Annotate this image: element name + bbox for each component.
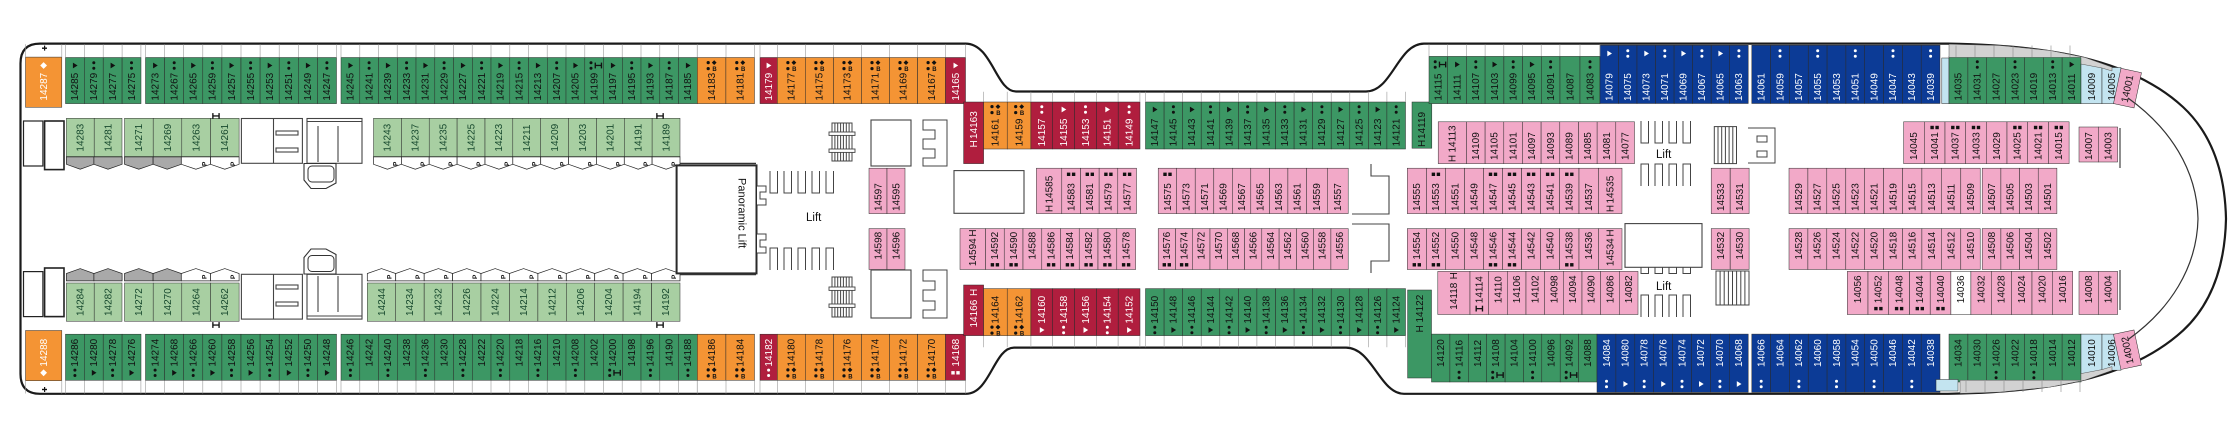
svg-text:14039: 14039 [1926, 73, 1937, 101]
svg-text:14095: 14095 [1527, 72, 1538, 100]
svg-text:H: H [1606, 229, 1617, 236]
svg-text:14262: 14262 [220, 288, 231, 316]
svg-text:14183: 14183 [707, 72, 718, 100]
svg-text:14571: 14571 [1200, 183, 1211, 211]
svg-text:14577: 14577 [1122, 183, 1133, 211]
svg-text:14188: 14188 [683, 338, 694, 366]
svg-text:14007: 14007 [2084, 132, 2095, 160]
svg-text:14161: 14161 [991, 118, 1002, 146]
svg-text:14555: 14555 [1412, 183, 1423, 211]
svg-text:14097: 14097 [1527, 132, 1538, 160]
svg-text:14531: 14531 [1735, 183, 1746, 211]
svg-text:P: P [476, 161, 483, 166]
svg-text:H: H [1448, 155, 1459, 162]
svg-text:14027: 14027 [1991, 72, 2002, 100]
svg-text:14004: 14004 [2103, 275, 2114, 303]
svg-text:B: B [820, 67, 825, 73]
svg-text:P: P [444, 274, 451, 279]
svg-text:14167: 14167 [927, 72, 938, 100]
svg-text:14111: 14111 [1452, 74, 1463, 101]
svg-text:14253: 14253 [265, 72, 276, 100]
svg-text:14216: 14216 [533, 338, 544, 366]
svg-text:14162: 14162 [1014, 295, 1025, 323]
svg-text:14516: 14516 [1908, 231, 1919, 259]
svg-text:14026: 14026 [1991, 339, 2002, 367]
svg-text:14257: 14257 [227, 72, 238, 100]
svg-text:14209: 14209 [550, 123, 561, 151]
svg-text:B: B [848, 67, 853, 73]
svg-text:14054: 14054 [1851, 339, 1862, 367]
svg-text:14128: 14128 [1354, 295, 1365, 323]
svg-text:14090: 14090 [1587, 275, 1598, 303]
svg-text:14588: 14588 [1028, 231, 1039, 259]
svg-text:14122: 14122 [1415, 294, 1426, 322]
svg-text:14036: 14036 [1956, 275, 1967, 303]
svg-text:14087: 14087 [1565, 72, 1576, 100]
svg-text:14170: 14170 [927, 338, 938, 366]
svg-text:14544: 14544 [1507, 231, 1518, 259]
svg-text:14552: 14552 [1431, 231, 1442, 259]
svg-text:14238: 14238 [402, 338, 413, 366]
svg-text:14234: 14234 [405, 288, 416, 316]
svg-text:14558: 14558 [1318, 231, 1329, 259]
svg-text:14032: 14032 [1976, 275, 1987, 303]
svg-text:14597: 14597 [873, 183, 884, 211]
svg-text:14537: 14537 [1584, 183, 1595, 211]
svg-text:14149: 14149 [1124, 118, 1135, 146]
svg-text:14223: 14223 [494, 123, 505, 151]
svg-text:14034: 14034 [1954, 339, 1965, 367]
svg-text:14581: 14581 [1085, 183, 1096, 211]
svg-text:14563: 14563 [1274, 183, 1285, 211]
svg-text:14227: 14227 [458, 72, 469, 100]
svg-text:14251: 14251 [284, 72, 295, 100]
svg-text:14145: 14145 [1169, 118, 1180, 146]
svg-text:14153: 14153 [1081, 118, 1092, 146]
svg-text:14045: 14045 [1909, 132, 1920, 160]
svg-text:14112: 14112 [1473, 339, 1484, 367]
svg-text:14276: 14276 [127, 338, 138, 366]
svg-text:14164: 14164 [991, 295, 1002, 323]
svg-text:14083: 14083 [1585, 72, 1596, 100]
svg-text:14505: 14505 [2006, 183, 2017, 211]
svg-text:14237: 14237 [411, 123, 422, 151]
svg-text:14556: 14556 [1335, 231, 1346, 259]
svg-text:14592: 14592 [990, 231, 1001, 259]
svg-text:14248: 14248 [322, 338, 333, 366]
svg-text:14202: 14202 [590, 338, 601, 366]
svg-text:14088: 14088 [1583, 339, 1594, 367]
svg-text:14522: 14522 [1851, 231, 1862, 259]
svg-text:14081: 14081 [1602, 132, 1613, 160]
svg-text:14015: 14015 [2054, 132, 2065, 160]
svg-text:14056: 14056 [1853, 275, 1864, 303]
svg-text:B: B [932, 67, 937, 73]
svg-text:P: P [586, 274, 593, 279]
svg-text:14530: 14530 [1735, 231, 1746, 259]
svg-text:14547: 14547 [1488, 183, 1499, 211]
svg-text:14549: 14549 [1469, 183, 1480, 211]
svg-text:14123: 14123 [1373, 118, 1384, 146]
svg-text:P: P [560, 161, 567, 166]
svg-text:14174: 14174 [871, 338, 882, 366]
svg-text:14193: 14193 [646, 72, 657, 100]
svg-text:14575: 14575 [1163, 183, 1174, 211]
svg-text:14250: 14250 [303, 338, 314, 366]
svg-text:14063: 14063 [1734, 73, 1745, 101]
svg-text:14194: 14194 [633, 288, 644, 316]
svg-text:14249: 14249 [303, 72, 314, 100]
svg-text:14585: 14585 [1044, 175, 1055, 203]
svg-text:14534: 14534 [1606, 238, 1617, 266]
svg-text:14595: 14595 [891, 183, 902, 211]
svg-text:14510: 14510 [1966, 231, 1977, 259]
svg-text:14042: 14042 [1907, 339, 1918, 367]
svg-text:B: B [1020, 111, 1025, 117]
svg-text:H: H [1044, 205, 1055, 212]
svg-text:14086: 14086 [1605, 275, 1616, 303]
svg-text:14134: 14134 [1299, 295, 1310, 323]
svg-text:14246: 14246 [346, 338, 357, 366]
svg-text:14526: 14526 [1813, 231, 1824, 259]
svg-text:P: P [202, 161, 209, 166]
svg-text:14099: 14099 [1509, 72, 1520, 100]
svg-text:P: P [420, 161, 427, 166]
svg-text:14215: 14215 [514, 72, 525, 100]
svg-text:14169: 14169 [899, 72, 910, 100]
svg-text:14031: 14031 [1973, 72, 1984, 100]
svg-text:B: B [876, 374, 881, 380]
svg-text:14035: 14035 [1954, 72, 1965, 100]
svg-text:14062: 14062 [1794, 339, 1805, 367]
svg-text:14055: 14055 [1813, 73, 1824, 101]
svg-text:14279: 14279 [89, 72, 100, 100]
svg-text:14509: 14509 [1966, 183, 1977, 211]
svg-text:14048: 14048 [1894, 275, 1905, 303]
svg-text:14139: 14139 [1224, 118, 1235, 146]
svg-text:14020: 14020 [2038, 275, 2049, 303]
svg-text:14524: 14524 [1832, 231, 1843, 259]
svg-text:P: P [500, 274, 507, 279]
svg-text:14224: 14224 [491, 288, 502, 316]
svg-text:P: P [557, 274, 564, 279]
svg-text:14064: 14064 [1775, 339, 1786, 367]
svg-text:14259: 14259 [208, 72, 219, 100]
svg-text:14046: 14046 [1888, 339, 1899, 367]
svg-text:B: B [848, 374, 853, 380]
svg-text:14271: 14271 [134, 123, 145, 151]
svg-text:14210: 14210 [552, 338, 563, 366]
svg-text:14057: 14057 [1794, 73, 1805, 101]
svg-text:14263: 14263 [192, 123, 203, 151]
svg-text:14570: 14570 [1214, 231, 1225, 259]
svg-text:B: B [932, 374, 937, 380]
svg-text:14094: 14094 [1568, 275, 1579, 303]
svg-text:14136: 14136 [1280, 295, 1291, 323]
svg-text:P: P [230, 274, 237, 279]
svg-text:P: P [230, 161, 237, 166]
svg-text:14281: 14281 [104, 123, 115, 151]
svg-text:14110: 14110 [1493, 276, 1504, 304]
svg-text:P: P [387, 274, 394, 279]
svg-text:14171: 14171 [871, 72, 882, 100]
svg-text:14501: 14501 [2043, 183, 2054, 211]
svg-text:14540: 14540 [1545, 231, 1556, 259]
svg-text:14008: 14008 [2084, 275, 2095, 303]
svg-text:14535: 14535 [1606, 175, 1617, 203]
svg-text:14187: 14187 [665, 72, 676, 100]
svg-text:14548: 14548 [1469, 231, 1480, 259]
svg-text:14559: 14559 [1312, 183, 1323, 211]
svg-text:14533: 14533 [1716, 183, 1727, 211]
svg-text:14050: 14050 [1869, 339, 1880, 367]
svg-text:14260: 14260 [208, 338, 219, 366]
svg-text:14256: 14256 [246, 338, 257, 366]
svg-text:14240: 14240 [383, 338, 394, 366]
svg-text:14158: 14158 [1059, 295, 1070, 323]
svg-text:14003: 14003 [2103, 132, 2114, 160]
svg-text:14580: 14580 [1103, 231, 1114, 259]
svg-text:14106: 14106 [1512, 275, 1523, 303]
svg-text:14538: 14538 [1565, 231, 1576, 259]
svg-text:14199: 14199 [590, 72, 601, 100]
svg-text:14582: 14582 [1084, 231, 1095, 259]
svg-text:14204: 14204 [604, 288, 615, 316]
svg-text:14218: 14218 [514, 338, 525, 366]
svg-text:14235: 14235 [439, 123, 450, 151]
svg-text:14069: 14069 [1679, 73, 1690, 101]
svg-text:14562: 14562 [1283, 231, 1294, 259]
svg-text:14147: 14147 [1150, 118, 1161, 146]
svg-text:14239: 14239 [383, 72, 394, 100]
svg-text:14226: 14226 [462, 288, 473, 316]
svg-text:14182: 14182 [764, 338, 775, 366]
svg-text:14077: 14077 [1621, 132, 1632, 160]
svg-text:14029: 14029 [1992, 132, 2003, 160]
svg-text:H: H [969, 140, 980, 147]
svg-text:14146: 14146 [1187, 295, 1198, 323]
svg-text:14564: 14564 [1266, 231, 1277, 259]
svg-text:P: P [504, 161, 511, 166]
svg-text:14119: 14119 [1417, 111, 1428, 139]
svg-text:14586: 14586 [1046, 231, 1057, 259]
svg-text:14085: 14085 [1583, 132, 1594, 160]
svg-text:14072: 14072 [1696, 339, 1707, 367]
svg-text:P: P [202, 274, 209, 279]
svg-text:14067: 14067 [1697, 73, 1708, 101]
svg-text:14084: 14084 [1602, 339, 1613, 367]
svg-text:14030: 14030 [1973, 339, 1984, 367]
svg-text:H: H [969, 289, 980, 296]
svg-text:14220: 14220 [496, 338, 507, 366]
svg-text:14247: 14247 [322, 72, 333, 100]
svg-text:14284: 14284 [76, 288, 87, 316]
svg-text:14208: 14208 [571, 338, 582, 366]
svg-text:14107: 14107 [1471, 72, 1482, 100]
svg-text:14009: 14009 [2087, 72, 2098, 100]
svg-text:14525: 14525 [1832, 183, 1843, 211]
svg-text:14116: 14116 [1454, 339, 1465, 367]
svg-text:14285: 14285 [70, 72, 81, 100]
svg-text:14513: 14513 [1927, 183, 1938, 211]
svg-text:14287: 14287 [39, 72, 50, 100]
svg-text:14258: 14258 [227, 338, 238, 366]
svg-text:14165: 14165 [951, 72, 962, 100]
svg-text:14266: 14266 [189, 338, 200, 366]
svg-text:14565: 14565 [1255, 183, 1266, 211]
svg-text:14527: 14527 [1813, 183, 1824, 211]
svg-text:14105: 14105 [1490, 132, 1501, 160]
svg-text:14037: 14037 [1951, 132, 1962, 160]
svg-text:14242: 14242 [364, 338, 375, 366]
svg-text:14159: 14159 [1014, 118, 1025, 146]
svg-text:14543: 14543 [1526, 183, 1537, 211]
svg-text:14011: 14011 [2067, 73, 2078, 101]
svg-text:B: B [904, 374, 909, 380]
svg-text:14074: 14074 [1677, 339, 1688, 367]
svg-text:H: H [1449, 272, 1460, 279]
svg-text:14092: 14092 [1565, 339, 1576, 367]
svg-text:14078: 14078 [1640, 339, 1651, 367]
svg-text:14546: 14546 [1488, 231, 1499, 259]
svg-text:14024: 14024 [2017, 275, 2028, 303]
svg-text:14282: 14282 [104, 288, 115, 316]
svg-text:14507: 14507 [1987, 183, 1998, 211]
svg-text:14213: 14213 [533, 72, 544, 100]
svg-text:14168: 14168 [951, 338, 962, 366]
svg-text:14561: 14561 [1292, 183, 1303, 211]
svg-text:14068: 14068 [1734, 339, 1745, 367]
svg-text:14228: 14228 [458, 338, 469, 366]
svg-text:14502: 14502 [2043, 231, 2054, 259]
svg-text:14252: 14252 [284, 338, 295, 366]
svg-text:14154: 14154 [1103, 295, 1114, 323]
svg-text:P: P [615, 161, 622, 166]
svg-text:14051: 14051 [1851, 73, 1862, 101]
svg-text:14190: 14190 [665, 338, 676, 366]
svg-text:14176: 14176 [843, 338, 854, 366]
svg-text:14076: 14076 [1659, 339, 1670, 367]
svg-text:14503: 14503 [2024, 183, 2035, 211]
svg-text:14047: 14047 [1888, 73, 1899, 101]
svg-text:14185: 14185 [683, 72, 694, 100]
svg-text:14179: 14179 [764, 72, 775, 100]
svg-text:14021: 14021 [2033, 132, 2044, 160]
svg-text:14104: 14104 [1510, 339, 1521, 367]
svg-text:14155: 14155 [1059, 118, 1070, 146]
svg-text:14066: 14066 [1757, 339, 1768, 367]
svg-text:14012: 14012 [2067, 339, 2078, 367]
svg-text:B: B [712, 67, 717, 73]
svg-text:14178: 14178 [815, 338, 826, 366]
svg-text:14118: 14118 [1449, 282, 1460, 310]
svg-text:14532: 14532 [1716, 231, 1727, 259]
svg-text:14049: 14049 [1869, 73, 1880, 101]
svg-text:14268: 14268 [170, 338, 181, 366]
svg-text:14583: 14583 [1066, 183, 1077, 211]
svg-text:14541: 14541 [1545, 183, 1556, 211]
svg-text:14590: 14590 [1009, 231, 1020, 259]
svg-text:P: P [392, 161, 399, 166]
svg-text:14010: 14010 [2087, 339, 2098, 367]
svg-text:14286: 14286 [70, 338, 81, 366]
svg-text:H: H [1417, 140, 1428, 147]
svg-text:14142: 14142 [1224, 295, 1235, 323]
svg-text:14124: 14124 [1392, 295, 1403, 323]
svg-text:14100: 14100 [1528, 339, 1539, 367]
svg-text:14574: 14574 [1179, 231, 1190, 259]
svg-text:14572: 14572 [1197, 231, 1208, 259]
svg-text:14160: 14160 [1037, 295, 1048, 323]
svg-text:14201: 14201 [606, 123, 617, 151]
svg-text:14523: 14523 [1851, 183, 1862, 211]
svg-text:14075: 14075 [1623, 73, 1634, 101]
svg-text:Lift: Lift [806, 212, 822, 224]
svg-text:14040: 14040 [1936, 275, 1947, 303]
svg-text:14229: 14229 [439, 72, 450, 100]
svg-text:14137: 14137 [1243, 118, 1254, 146]
svg-text:14222: 14222 [477, 338, 488, 366]
svg-text:14512: 14512 [1946, 231, 1957, 259]
svg-text:14197: 14197 [608, 72, 619, 100]
svg-text:14070: 14070 [1715, 339, 1726, 367]
svg-text:14504: 14504 [2024, 231, 2035, 259]
svg-text:14140: 14140 [1243, 295, 1254, 323]
svg-text:14536: 14536 [1584, 231, 1595, 259]
svg-text:14518: 14518 [1888, 231, 1899, 259]
svg-text:14143: 14143 [1187, 118, 1198, 146]
svg-text:B: B [712, 374, 717, 380]
svg-text:14184: 14184 [736, 338, 747, 366]
svg-text:14567: 14567 [1237, 183, 1248, 211]
svg-text:14071: 14071 [1660, 73, 1671, 101]
svg-text:14151: 14151 [1103, 118, 1114, 146]
svg-text:14152: 14152 [1124, 295, 1135, 323]
svg-text:P: P [614, 274, 621, 279]
svg-text:14261: 14261 [220, 123, 231, 151]
svg-text:H: H [1606, 205, 1617, 212]
svg-text:14131: 14131 [1299, 118, 1310, 146]
svg-text:B: B [792, 67, 797, 73]
svg-text:14254: 14254 [265, 338, 276, 366]
svg-text:14157: 14157 [1037, 118, 1048, 146]
svg-text:14038: 14038 [1926, 339, 1937, 367]
svg-text:14579: 14579 [1104, 183, 1115, 211]
svg-text:14089: 14089 [1564, 132, 1575, 160]
svg-text:14551: 14551 [1450, 183, 1461, 211]
svg-text:14596: 14596 [891, 231, 902, 259]
svg-text:14098: 14098 [1549, 275, 1560, 303]
svg-text:14196: 14196 [646, 338, 657, 366]
svg-text:14141: 14141 [1206, 118, 1217, 146]
svg-text:14016: 14016 [2058, 275, 2069, 303]
svg-text:14576: 14576 [1162, 231, 1173, 259]
svg-text:P: P [587, 161, 594, 166]
svg-text:14206: 14206 [576, 288, 587, 316]
svg-text:14132: 14132 [1317, 295, 1328, 323]
svg-text:14529: 14529 [1794, 183, 1805, 211]
svg-text:P: P [643, 161, 650, 166]
svg-text:14073: 14073 [1642, 73, 1653, 101]
svg-text:14231: 14231 [421, 72, 432, 100]
svg-text:14195: 14195 [627, 72, 638, 100]
svg-text:14245: 14245 [346, 72, 357, 100]
svg-text:14133: 14133 [1280, 118, 1291, 146]
svg-text:B: B [996, 332, 1001, 338]
svg-text:14514: 14514 [1927, 231, 1938, 259]
svg-text:14569: 14569 [1218, 183, 1229, 211]
svg-text:14515: 14515 [1908, 183, 1919, 211]
